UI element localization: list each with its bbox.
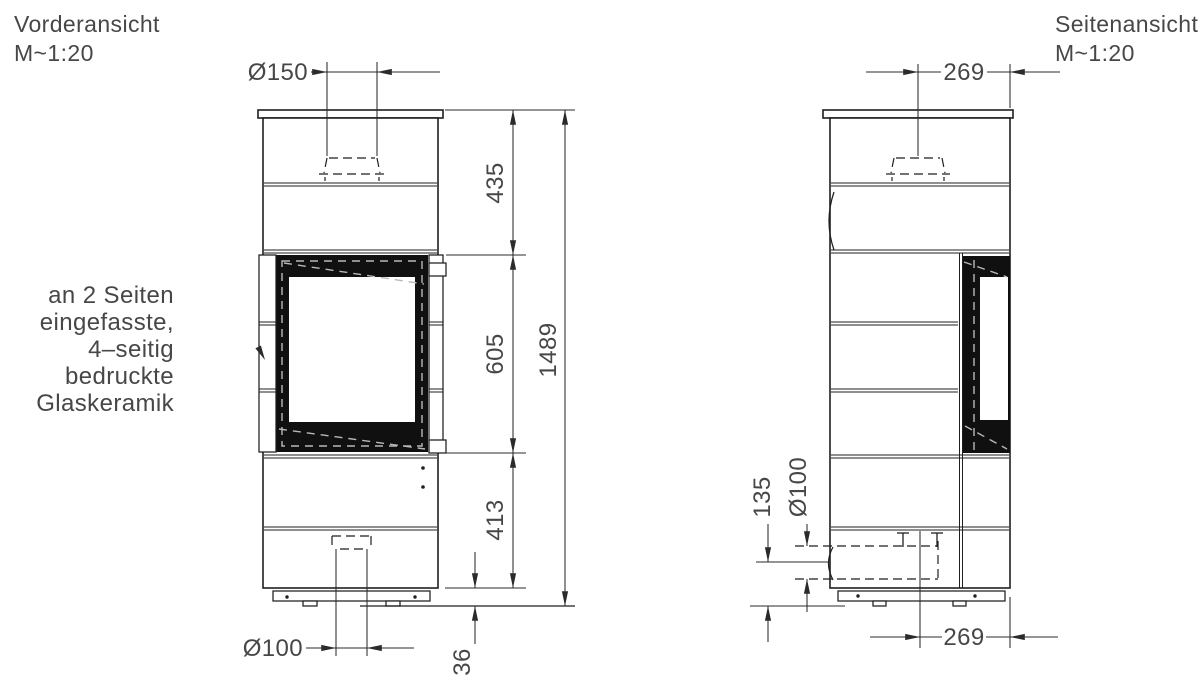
dim-side-duct-to-back: 269 <box>943 624 984 651</box>
side-glass-pane <box>980 277 1008 420</box>
sheet-background <box>0 0 1200 697</box>
front-door-latch-dot <box>421 485 425 489</box>
glass-note-line: Glaskeramik <box>36 390 174 417</box>
side-view-scale: M~1:20 <box>1055 40 1135 66</box>
side-foot <box>873 601 886 606</box>
dim-side-air-inlet-diameter: Ø100 <box>785 457 812 517</box>
technical-drawing-sheet: Vorderansicht M~1:20 <box>0 0 1200 697</box>
dim-front-605: 605 <box>482 333 509 374</box>
dim-front-36: 36 <box>449 648 476 676</box>
front-right-bottom-block <box>429 440 446 453</box>
front-right-top-block <box>429 263 446 276</box>
front-left-frame-column <box>259 255 276 452</box>
dim-side-135: 135 <box>749 476 776 517</box>
dim-side-flue-to-back: 269 <box>943 59 984 86</box>
front-foot <box>386 601 400 606</box>
front-door-latch-dot <box>421 466 425 470</box>
glass-note-line: an 2 Seiten <box>48 282 174 309</box>
glass-note-line: bedruckte <box>65 363 174 390</box>
front-view-title: Vorderansicht <box>14 11 160 37</box>
side-view-title: Seitenansicht <box>1055 11 1198 37</box>
dim-front-1489: 1489 <box>535 323 562 378</box>
front-top-plate <box>258 110 443 118</box>
dim-front-435: 435 <box>482 162 509 203</box>
side-window <box>963 256 1010 453</box>
side-plinth-board <box>838 591 1005 601</box>
front-glass-pane <box>289 277 415 422</box>
front-foot <box>303 601 317 606</box>
dim-front-flue-diameter: Ø150 <box>248 59 308 86</box>
side-foot <box>953 601 966 606</box>
front-plinth-board <box>273 591 430 601</box>
glass-note-line: eingefasste, <box>40 309 174 336</box>
front-view-scale: M~1:20 <box>14 40 94 66</box>
dim-front-413: 413 <box>482 499 509 540</box>
dim-front-air-inlet-diameter: Ø100 <box>243 635 303 662</box>
front-right-frame-column <box>429 255 443 452</box>
glass-note-line: 4–seitig <box>88 336 174 363</box>
drawing-canvas: Vorderansicht M~1:20 <box>0 0 1200 697</box>
